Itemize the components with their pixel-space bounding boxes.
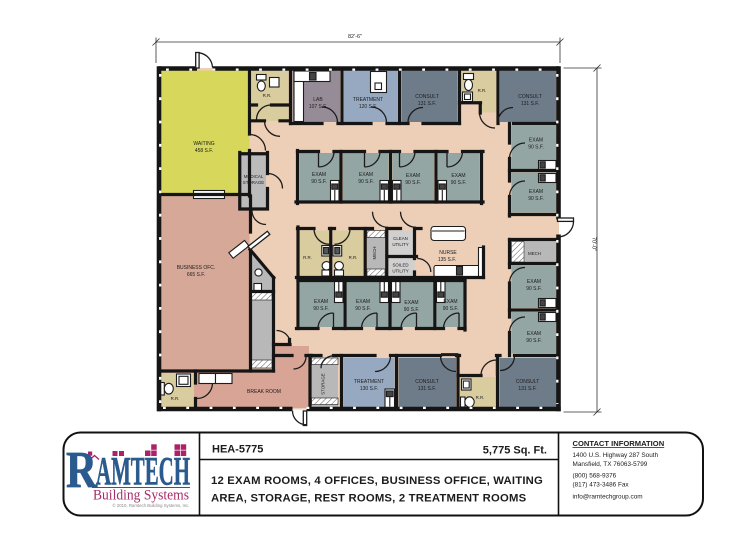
- svg-text:82'-6": 82'-6": [348, 34, 362, 40]
- svg-text:MEDICAL: MEDICAL: [244, 174, 264, 179]
- svg-text:EXAM: EXAM: [443, 299, 457, 305]
- svg-text:70'-0": 70'-0": [591, 237, 597, 251]
- svg-text:LAB: LAB: [313, 97, 323, 103]
- svg-text:(800) 568-9376: (800) 568-9376: [573, 473, 617, 480]
- svg-text:TREATMENT: TREATMENT: [353, 97, 383, 103]
- svg-text:5,775 Sq. Ft.: 5,775 Sq. Ft.: [483, 445, 547, 457]
- svg-text:135 S.F.: 135 S.F.: [438, 257, 456, 263]
- svg-text:131 S.F.: 131 S.F.: [521, 101, 539, 107]
- svg-text:EXAM: EXAM: [406, 173, 420, 179]
- svg-text:90 S.F.: 90 S.F.: [451, 180, 467, 186]
- svg-text:EXAM: EXAM: [359, 172, 373, 178]
- svg-text:CLEAN: CLEAN: [393, 236, 408, 241]
- svg-text:Building Systems: Building Systems: [93, 488, 189, 504]
- svg-text:CONTACT INFORMATION: CONTACT INFORMATION: [573, 439, 665, 448]
- svg-text:90 S.F.: 90 S.F.: [405, 180, 421, 186]
- svg-text:90 S.F.: 90 S.F.: [311, 179, 327, 185]
- svg-text:CONSULT: CONSULT: [415, 94, 439, 100]
- svg-text:SOILED: SOILED: [392, 263, 408, 268]
- svg-text:(817) 473-3486 Fax: (817) 473-3486 Fax: [573, 482, 630, 489]
- svg-text:Mansfield, TX 76063-5799: Mansfield, TX 76063-5799: [573, 461, 648, 468]
- svg-text:R.R.: R.R.: [171, 396, 180, 401]
- svg-text:131 S.F.: 131 S.F.: [418, 101, 436, 107]
- svg-text:BUSINESS OFC.: BUSINESS OFC.: [177, 265, 216, 271]
- svg-text:UTILITY: UTILITY: [392, 242, 408, 247]
- svg-text:90 S.F.: 90 S.F.: [526, 286, 542, 292]
- svg-text:458 S.F.: 458 S.F.: [195, 148, 213, 154]
- svg-text:90 S.F.: 90 S.F.: [355, 306, 371, 312]
- svg-text:EXAM: EXAM: [527, 331, 541, 337]
- svg-text:R.R.: R.R.: [349, 255, 358, 260]
- svg-text:131 S.F.: 131 S.F.: [418, 386, 436, 392]
- svg-text:CONSULT: CONSULT: [516, 379, 540, 385]
- svg-text:131 S.F.: 131 S.F.: [518, 386, 536, 392]
- svg-text:MECH: MECH: [372, 247, 377, 260]
- svg-text:R.R.: R.R.: [263, 93, 272, 98]
- svg-text:NURSE: NURSE: [439, 250, 457, 256]
- svg-text:130 S.F.: 130 S.F.: [360, 386, 378, 392]
- svg-text:R.R.: R.R.: [303, 255, 312, 260]
- svg-text:90 S.F.: 90 S.F.: [358, 179, 374, 185]
- svg-text:EXAM: EXAM: [527, 279, 541, 285]
- svg-text:R.R.: R.R.: [478, 88, 487, 93]
- svg-text:HEA-5775: HEA-5775: [212, 444, 263, 456]
- svg-text:BREAK ROOM: BREAK ROOM: [247, 389, 281, 395]
- svg-text:90 S.F.: 90 S.F.: [443, 306, 459, 312]
- svg-text:EXAM: EXAM: [314, 299, 328, 305]
- svg-text:UTILITY: UTILITY: [392, 269, 408, 274]
- svg-text:STORAGE: STORAGE: [321, 373, 326, 394]
- svg-text:TREATMENT: TREATMENT: [354, 379, 384, 385]
- svg-text:info@ramtechgroup.com: info@ramtechgroup.com: [573, 494, 643, 501]
- svg-text:120 S.F.: 120 S.F.: [359, 104, 377, 110]
- svg-text:EXAM: EXAM: [451, 173, 465, 179]
- svg-text:90 S.F.: 90 S.F.: [404, 307, 420, 313]
- svg-text:90 S.F.: 90 S.F.: [528, 196, 544, 202]
- svg-text:90 S.F.: 90 S.F.: [528, 145, 544, 151]
- svg-text:R.R.: R.R.: [476, 395, 485, 400]
- svg-text:MECH: MECH: [528, 251, 541, 256]
- svg-text:EXAM: EXAM: [529, 189, 543, 195]
- svg-text:107 S.F.: 107 S.F.: [309, 104, 327, 110]
- svg-text:WAITING: WAITING: [193, 141, 214, 147]
- svg-text:90 S.F.: 90 S.F.: [313, 306, 329, 312]
- svg-text:© 2010, Ramtech Building Syste: © 2010, Ramtech Building Systems, Inc.: [113, 503, 190, 508]
- svg-text:CONSULT: CONSULT: [415, 379, 439, 385]
- svg-text:665 S.F.: 665 S.F.: [187, 272, 205, 278]
- svg-text:1400 U.S. Highway 287 South: 1400 U.S. Highway 287 South: [573, 452, 659, 459]
- svg-text:EXAM: EXAM: [529, 138, 543, 144]
- svg-text:EXAM: EXAM: [356, 299, 370, 305]
- svg-text:90 S.F.: 90 S.F.: [526, 338, 542, 344]
- svg-text:STORAGE: STORAGE: [243, 180, 264, 185]
- svg-text:CONSULT: CONSULT: [518, 94, 542, 100]
- svg-text:EXAM: EXAM: [312, 172, 326, 178]
- svg-text:AREA, STORAGE, REST ROOMS, 2 T: AREA, STORAGE, REST ROOMS, 2 TREATMENT R…: [211, 493, 527, 505]
- svg-text:12 EXAM ROOMS, 4 OFFICES, BUSI: 12 EXAM ROOMS, 4 OFFICES, BUSINESS OFFIC…: [211, 475, 543, 487]
- svg-text:EXAM: EXAM: [404, 300, 418, 306]
